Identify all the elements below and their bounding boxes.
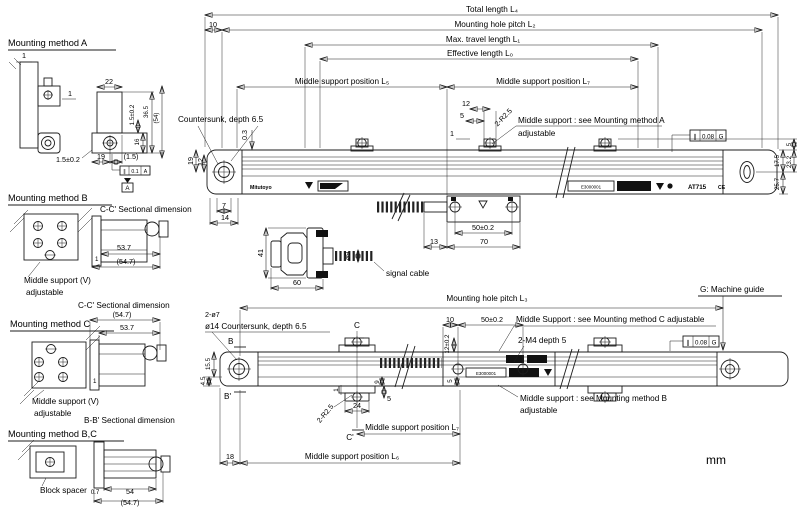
units-label: mm <box>706 453 726 467</box>
dim-2-r2-5: 2-R2.5 <box>492 106 513 128</box>
middle-support-note-line1: Middle support : see Mounting method A <box>518 116 665 125</box>
countersunk-note: Countersunk, depth 6.5 <box>178 115 264 124</box>
middle-support-note-line2: adjustable <box>518 129 556 138</box>
top-scale-body: Mitutoyo E3000001 AT715 CE <box>207 137 777 198</box>
connector-dim-41: 41 <box>256 249 265 257</box>
mounting-method-a: Mounting method A 1 1 1.5±0.2 22 1.5±0.2… <box>8 38 164 192</box>
top-view-notes: Countersunk, depth 6.5 0.3 19 12 7 14 12… <box>178 99 797 225</box>
tol-symbol: ∥ <box>693 134 696 141</box>
c-adjustable: adjustable <box>34 409 72 418</box>
ce-mark: CE <box>718 185 726 191</box>
dim-10-bottom: 10 <box>446 315 454 324</box>
brand-label: Mitutoyo <box>250 185 272 191</box>
support-c-note: Middle Support : see Mounting method C a… <box>516 315 705 324</box>
dim-0-3: 0.3 <box>240 130 249 140</box>
head-dim-13: 13 <box>430 237 438 246</box>
product-label-block <box>617 181 651 191</box>
dim-12-bottom: 12±0.2 <box>444 334 451 353</box>
dim-24: 24 <box>353 401 361 410</box>
label-dot-icon <box>667 183 672 188</box>
signal-connector: 41 60 ø9 signal cable <box>256 228 430 290</box>
bottom-support-bracket-right-top <box>588 336 622 352</box>
b-dim-1: 1 <box>95 256 99 263</box>
b-screws <box>33 221 67 260</box>
dim-total-length: Total length L₄ <box>466 5 519 14</box>
connector-dim-60: 60 <box>293 278 301 287</box>
a-dim-36-5: 36.5 <box>143 105 150 118</box>
end-dim-7: 7 <box>222 201 226 210</box>
a-dim-54: (54) <box>153 112 160 123</box>
b-adjustable: adjustable <box>26 288 64 297</box>
datum-a-box: A <box>125 185 130 192</box>
machine-guide-note: G: Machine guide <box>700 285 765 294</box>
a-dim-1-side: 1 <box>68 89 72 98</box>
tol-value: 0.08 <box>702 134 715 141</box>
dim-middle-support-l5: Middle support position L₅ <box>295 77 389 86</box>
reference-mark-icon <box>305 182 313 189</box>
dim-10-offset: 10 <box>209 20 217 29</box>
top-dimension-lines: Total length L₄ 10 Mounting hole pitch L… <box>205 5 778 195</box>
tol-b-value: 0.08 <box>695 340 708 347</box>
right-dim-25-7: 25.7 <box>774 177 781 190</box>
dim-4-5: 4.5 <box>200 376 207 385</box>
block-spacer-label: Block spacer <box>40 486 87 495</box>
bc-dim-54-7: (54.7) <box>121 498 140 507</box>
c-dim-1: 1 <box>93 378 97 385</box>
hole-dim-12: 12 <box>196 158 205 166</box>
bracket-dim-1: 1 <box>450 129 454 138</box>
tol-b-datum: G <box>712 340 717 347</box>
head-dim-50: 50±0.2 <box>472 223 494 232</box>
holes-2-d7-note: 2-ø7 <box>205 310 220 319</box>
technical-drawing-page: Total length L₄ 10 Mounting hole pitch L… <box>0 0 800 520</box>
cc-section-title-c: C-C' Sectional dimension <box>78 301 170 310</box>
a-dim-1-5-left: 1.5±0.2 <box>56 155 80 164</box>
cable-dia-label: ø9 <box>343 252 352 260</box>
c-dim-53-7: 53.7 <box>120 323 134 332</box>
c-middle-support-v: Middle support (V) <box>32 397 99 406</box>
dim-5-bottom: 5 <box>387 394 391 403</box>
dim-5-head: 5 <box>447 379 454 383</box>
dim-mounting-hole-pitch-l2: Mounting hole pitch L₂ <box>454 20 535 29</box>
dim-middle-support-l7-top: Middle support position L₇ <box>496 77 590 86</box>
head-screw-left <box>448 200 462 214</box>
c-dim-54-7: (54.7) <box>113 310 132 319</box>
head-triangle-mark-icon <box>479 201 487 208</box>
dim-max-travel-l1: Max. travel length L₁ <box>446 35 520 44</box>
mounting-method-bc: B-B' Sectional dimension Mounting method… <box>8 416 175 507</box>
head-dim-70: 70 <box>480 237 488 246</box>
a-dim-16: 16 <box>134 138 141 145</box>
a-dim-19: 19 <box>97 152 105 161</box>
tol-b-symbol: ∥ <box>686 340 689 347</box>
a-dim-1-top: 1 <box>22 51 26 60</box>
support-b-note-line1: Middle support : see Mounting method B <box>520 394 668 403</box>
right-dim-5: 5 <box>786 142 793 146</box>
a-dim-22: 22 <box>105 77 113 86</box>
mounting-method-c: C-C' Sectional dimension Mounting method… <box>10 301 170 418</box>
bc-dim-0-7: 0.7 <box>91 489 100 496</box>
bc-dim-54: 54 <box>126 487 134 496</box>
dim-effective-length-l0: Effective length L₀ <box>447 49 513 58</box>
b-dim-53-7: 53.7 <box>117 243 131 252</box>
a-dim-1-5-rot: 1.5±0.2 <box>129 104 136 125</box>
b-dim-54-7: (54.7) <box>117 257 136 266</box>
support-b-note-line2: adjustable <box>520 406 558 415</box>
dim-18: 18 <box>226 452 234 461</box>
dim-15-5: 15.5 <box>205 357 212 370</box>
mounting-method-a-title: Mounting method A <box>8 38 88 48</box>
b-middle-support-v: Middle support (V) <box>24 276 91 285</box>
bracket-dim-5: 5 <box>460 111 464 120</box>
dim-mounting-hole-pitch-l3: Mounting hole pitch L₃ <box>446 294 527 303</box>
head-screw-right <box>505 200 519 214</box>
tol-a-datum: A <box>144 169 148 175</box>
bb-section-title: B-B' Sectional dimension <box>84 416 175 425</box>
reader-head-assembly: 50±0.2 13 70 <box>377 193 520 249</box>
hole-dim-19: 19 <box>186 157 195 165</box>
holes-d14-note: ø14 Countersunk, depth 6.5 <box>205 322 307 331</box>
tol-datum: G <box>719 134 724 141</box>
tolerance-frame-top: ∥ 0.08 G <box>672 130 726 152</box>
cc-section-title-b: C-C' Sectional dimension <box>100 205 192 214</box>
bracket-dim-12: 12 <box>462 99 470 108</box>
bottom-left-countersunk-hole <box>227 357 251 381</box>
mounting-method-bc-title: Mounting method B,C <box>8 429 97 439</box>
dim-2-r2-5-bottom: 2-R2.5 <box>315 402 336 424</box>
signal-cable-label: signal cable <box>386 269 430 278</box>
dim-support-l6: Middle support position L₆ <box>305 452 399 461</box>
m4-note: 2-M4 depth 5 <box>518 336 567 345</box>
reference-mark2-icon <box>656 183 664 190</box>
tolerance-frame-bottom: ∥ 0.08 G <box>670 336 719 351</box>
dim-1-bottom: 1 <box>333 388 340 392</box>
right-dim-17-5: 17.5 <box>774 154 781 167</box>
dim-9: 9 <box>374 380 381 384</box>
middle-support-bracket-3 <box>594 137 616 151</box>
label-wedge-icon <box>320 183 343 189</box>
dim-support-l7-bottom: Middle support position L₇ <box>365 423 459 432</box>
bottom-serial-label: E3000001 <box>476 371 497 376</box>
dim-50-bottom: 50±0.2 <box>481 315 503 324</box>
model-label: AT715 <box>688 184 707 191</box>
middle-support-bracket-1 <box>351 137 373 151</box>
section-b-prime-label: B' <box>224 392 231 401</box>
section-c-prime-label: C' <box>346 433 354 442</box>
bottom-view: G: Machine guide Mounting hole pitch L₃ … <box>200 285 788 467</box>
right-dim-23-2: 23.2 <box>786 155 793 168</box>
section-b-label: B <box>228 337 234 346</box>
mounting-method-c-title: Mounting method C <box>10 319 91 329</box>
section-c-label: C <box>354 321 360 330</box>
tol-a-symbol: ∥ <box>123 169 126 175</box>
left-countersunk-hole <box>212 160 236 184</box>
linear-scale-dimension-drawing: Total length L₄ 10 Mounting hole pitch L… <box>0 0 800 520</box>
middle-support-bracket-2 <box>479 137 501 151</box>
c-screws <box>34 345 68 383</box>
tol-a-value: 0.1 <box>131 169 138 175</box>
a-dim-1-5-paren: (1.5) <box>124 152 139 161</box>
bottom-right-target-hole <box>719 358 741 380</box>
serial-label: E3000001 <box>581 185 602 190</box>
end-dim-14: 14 <box>221 213 229 222</box>
right-oval-hole <box>740 162 754 183</box>
mounting-method-b: Mounting method B C-C' Sectional dimensi… <box>8 193 192 297</box>
mounting-method-b-title: Mounting method B <box>8 193 88 203</box>
